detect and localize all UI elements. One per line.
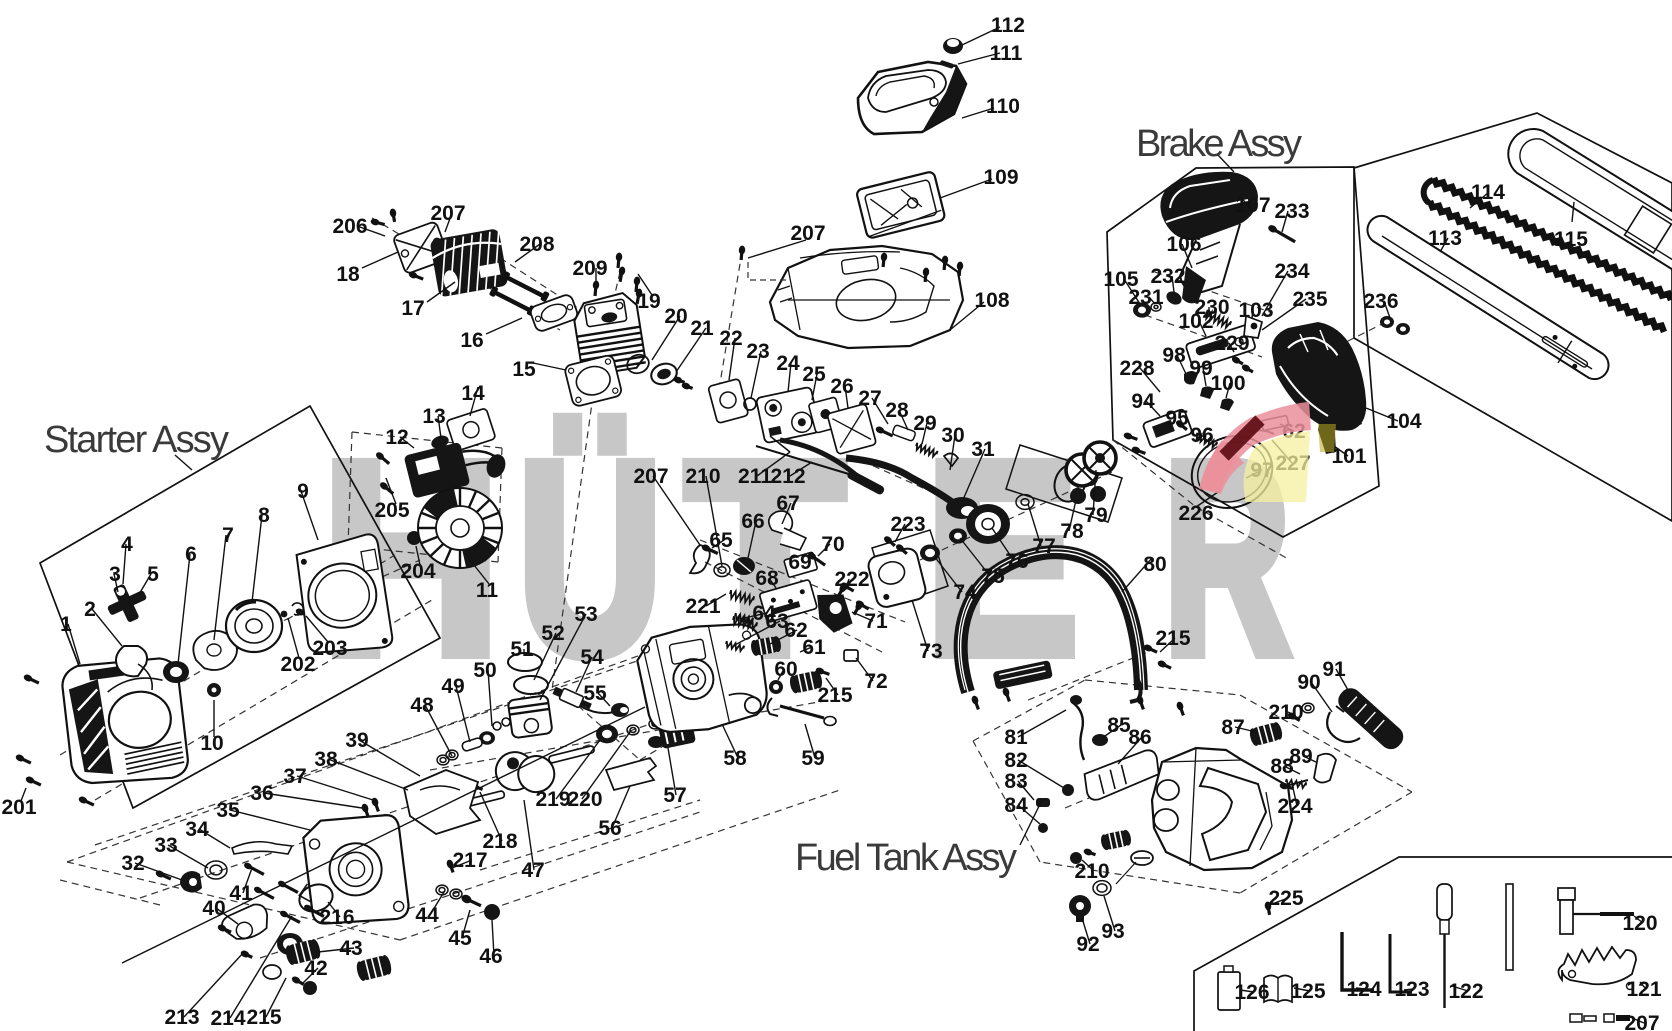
svg-text:25: 25 <box>802 363 826 386</box>
svg-text:207: 207 <box>1624 1012 1659 1031</box>
svg-text:219: 219 <box>535 788 570 811</box>
svg-text:202: 202 <box>280 653 315 676</box>
svg-text:26: 26 <box>830 375 853 398</box>
svg-text:210: 210 <box>1268 701 1303 724</box>
svg-text:126: 126 <box>1234 981 1269 1004</box>
svg-text:Fuel Tank Assy: Fuel Tank Assy <box>795 837 1018 879</box>
svg-text:33: 33 <box>154 834 177 857</box>
svg-text:212: 212 <box>770 465 805 488</box>
svg-text:12: 12 <box>385 426 408 449</box>
svg-text:226: 226 <box>1178 502 1213 525</box>
svg-text:17: 17 <box>401 297 424 320</box>
svg-text:229: 229 <box>1214 332 1249 355</box>
svg-text:221: 221 <box>685 595 720 618</box>
svg-text:21: 21 <box>690 317 714 340</box>
svg-text:52: 52 <box>541 622 564 645</box>
svg-text:49: 49 <box>441 675 464 698</box>
svg-text:72: 72 <box>864 670 887 693</box>
svg-text:75: 75 <box>981 565 1005 588</box>
svg-text:215: 215 <box>817 684 852 707</box>
svg-text:207: 207 <box>430 202 465 225</box>
svg-text:111: 111 <box>990 42 1023 65</box>
svg-text:232: 232 <box>1150 265 1185 288</box>
svg-text:50: 50 <box>473 659 496 682</box>
svg-text:9: 9 <box>297 480 309 503</box>
svg-text:113: 113 <box>1428 227 1462 250</box>
svg-text:55: 55 <box>583 682 607 705</box>
svg-text:43: 43 <box>339 937 362 960</box>
svg-text:215: 215 <box>246 1006 281 1029</box>
svg-text:69: 69 <box>788 551 811 574</box>
svg-text:102: 102 <box>1178 310 1213 333</box>
svg-text:28: 28 <box>885 399 909 422</box>
svg-text:217: 217 <box>452 849 487 872</box>
svg-text:81: 81 <box>1004 726 1028 749</box>
svg-text:61: 61 <box>802 636 826 659</box>
svg-text:8: 8 <box>258 504 270 527</box>
svg-text:98: 98 <box>1162 344 1186 367</box>
svg-text:35: 35 <box>216 799 240 822</box>
svg-text:78: 78 <box>1060 520 1084 543</box>
svg-text:59: 59 <box>801 747 824 770</box>
svg-text:38: 38 <box>314 748 338 771</box>
svg-text:234: 234 <box>1274 260 1309 283</box>
svg-text:203: 203 <box>312 637 347 660</box>
svg-text:213: 213 <box>164 1006 199 1029</box>
svg-text:208: 208 <box>519 233 554 256</box>
svg-text:220: 220 <box>567 788 602 811</box>
svg-text:109: 109 <box>983 166 1018 189</box>
svg-text:211: 211 <box>738 465 772 488</box>
svg-text:228: 228 <box>1119 357 1154 380</box>
svg-text:83: 83 <box>1004 770 1027 793</box>
svg-text:96: 96 <box>1190 424 1213 447</box>
svg-text:120: 120 <box>1622 912 1657 935</box>
svg-text:47: 47 <box>521 859 544 882</box>
svg-text:76: 76 <box>1005 550 1028 573</box>
svg-text:89: 89 <box>1289 745 1312 768</box>
svg-text:79: 79 <box>1084 504 1107 527</box>
svg-text:210: 210 <box>685 465 720 488</box>
svg-text:27: 27 <box>858 387 881 410</box>
svg-text:74: 74 <box>953 581 977 604</box>
svg-text:216: 216 <box>319 906 354 929</box>
svg-text:235: 235 <box>1292 288 1327 311</box>
svg-text:110: 110 <box>986 95 1020 118</box>
svg-text:24: 24 <box>776 352 800 375</box>
svg-text:65: 65 <box>709 529 733 552</box>
svg-text:73: 73 <box>919 640 942 663</box>
svg-text:77: 77 <box>1032 535 1055 558</box>
svg-text:67: 67 <box>776 492 799 515</box>
svg-text:71: 71 <box>864 610 888 633</box>
svg-text:51: 51 <box>510 638 534 661</box>
svg-text:15: 15 <box>512 358 536 381</box>
svg-text:6: 6 <box>185 543 197 566</box>
svg-text:80: 80 <box>1143 553 1166 576</box>
svg-text:201: 201 <box>1 796 36 819</box>
svg-text:57: 57 <box>663 784 686 807</box>
svg-text:124: 124 <box>1346 978 1381 1001</box>
svg-text:215: 215 <box>1155 627 1190 650</box>
svg-text:92: 92 <box>1076 933 1099 956</box>
svg-text:Starter Assy: Starter Assy <box>44 419 230 461</box>
svg-text:31: 31 <box>971 438 995 461</box>
svg-text:90: 90 <box>1297 671 1320 694</box>
svg-text:225: 225 <box>1268 887 1303 910</box>
svg-text:1: 1 <box>60 613 72 636</box>
svg-text:29: 29 <box>913 412 936 435</box>
svg-text:32: 32 <box>121 852 144 875</box>
svg-text:86: 86 <box>1128 726 1151 749</box>
svg-text:210: 210 <box>1074 860 1109 883</box>
svg-text:106: 106 <box>1166 233 1201 256</box>
svg-text:93: 93 <box>1101 920 1124 943</box>
svg-text:36: 36 <box>250 782 273 805</box>
svg-text:70: 70 <box>821 533 844 556</box>
svg-text:14: 14 <box>461 382 485 405</box>
svg-text:95: 95 <box>1165 407 1189 430</box>
svg-text:19: 19 <box>637 290 660 313</box>
svg-text:209: 209 <box>572 257 607 280</box>
svg-text:123: 123 <box>1394 978 1429 1001</box>
svg-text:42: 42 <box>304 957 327 980</box>
svg-text:205: 205 <box>374 499 409 522</box>
svg-text:82: 82 <box>1004 749 1027 772</box>
svg-text:16: 16 <box>460 329 483 352</box>
svg-text:91: 91 <box>1322 658 1346 681</box>
svg-text:5: 5 <box>147 563 159 586</box>
svg-text:112: 112 <box>991 14 1025 37</box>
svg-text:22: 22 <box>719 327 742 350</box>
svg-text:40: 40 <box>202 897 225 920</box>
svg-text:99: 99 <box>1189 357 1212 380</box>
svg-text:60: 60 <box>774 658 797 681</box>
svg-text:222: 222 <box>834 568 869 591</box>
svg-text:34: 34 <box>185 818 209 841</box>
svg-text:53: 53 <box>574 603 597 626</box>
svg-text:233: 233 <box>1274 200 1309 223</box>
svg-text:101: 101 <box>1331 445 1366 468</box>
svg-text:48: 48 <box>410 694 434 717</box>
svg-text:87: 87 <box>1221 716 1244 739</box>
svg-text:39: 39 <box>345 729 368 752</box>
svg-text:46: 46 <box>479 945 502 968</box>
svg-text:125: 125 <box>1290 980 1325 1003</box>
svg-text:13: 13 <box>422 405 445 428</box>
svg-text:45: 45 <box>448 927 472 950</box>
svg-text:104: 104 <box>1386 410 1421 433</box>
svg-text:94: 94 <box>1131 390 1155 413</box>
svg-text:207: 207 <box>790 222 825 245</box>
svg-text:207: 207 <box>633 465 668 488</box>
svg-text:20: 20 <box>664 305 687 328</box>
svg-text:7: 7 <box>222 524 234 547</box>
svg-text:236: 236 <box>1363 290 1398 313</box>
svg-text:122: 122 <box>1448 980 1483 1003</box>
svg-text:114: 114 <box>1471 181 1505 204</box>
svg-text:3: 3 <box>109 563 121 586</box>
svg-text:231: 231 <box>1128 286 1163 309</box>
svg-text:30: 30 <box>941 424 964 447</box>
svg-text:54: 54 <box>580 646 604 669</box>
svg-text:2: 2 <box>84 598 96 621</box>
svg-text:107: 107 <box>1235 194 1270 217</box>
svg-text:Brake Assy: Brake Assy <box>1136 123 1303 165</box>
svg-text:206: 206 <box>332 215 367 238</box>
svg-text:58: 58 <box>723 747 747 770</box>
svg-text:103: 103 <box>1238 299 1273 322</box>
svg-text:68: 68 <box>755 567 779 590</box>
svg-text:18: 18 <box>336 263 360 286</box>
svg-text:100: 100 <box>1210 372 1245 395</box>
svg-text:56: 56 <box>598 817 621 840</box>
svg-text:10: 10 <box>200 732 223 755</box>
svg-text:214: 214 <box>210 1007 245 1030</box>
svg-text:11: 11 <box>476 579 499 602</box>
svg-text:218: 218 <box>482 830 517 853</box>
svg-text:108: 108 <box>974 289 1009 312</box>
svg-text:4: 4 <box>121 533 133 556</box>
svg-text:37: 37 <box>283 765 306 788</box>
svg-text:44: 44 <box>415 904 439 927</box>
svg-text:23: 23 <box>746 340 769 363</box>
svg-text:121: 121 <box>1626 978 1661 1001</box>
svg-text:223: 223 <box>890 513 925 536</box>
svg-text:84: 84 <box>1004 794 1028 817</box>
svg-text:204: 204 <box>400 560 435 583</box>
svg-text:66: 66 <box>741 510 764 533</box>
svg-text:115: 115 <box>1554 228 1588 251</box>
svg-text:224: 224 <box>1277 795 1312 818</box>
svg-text:41: 41 <box>229 882 253 905</box>
